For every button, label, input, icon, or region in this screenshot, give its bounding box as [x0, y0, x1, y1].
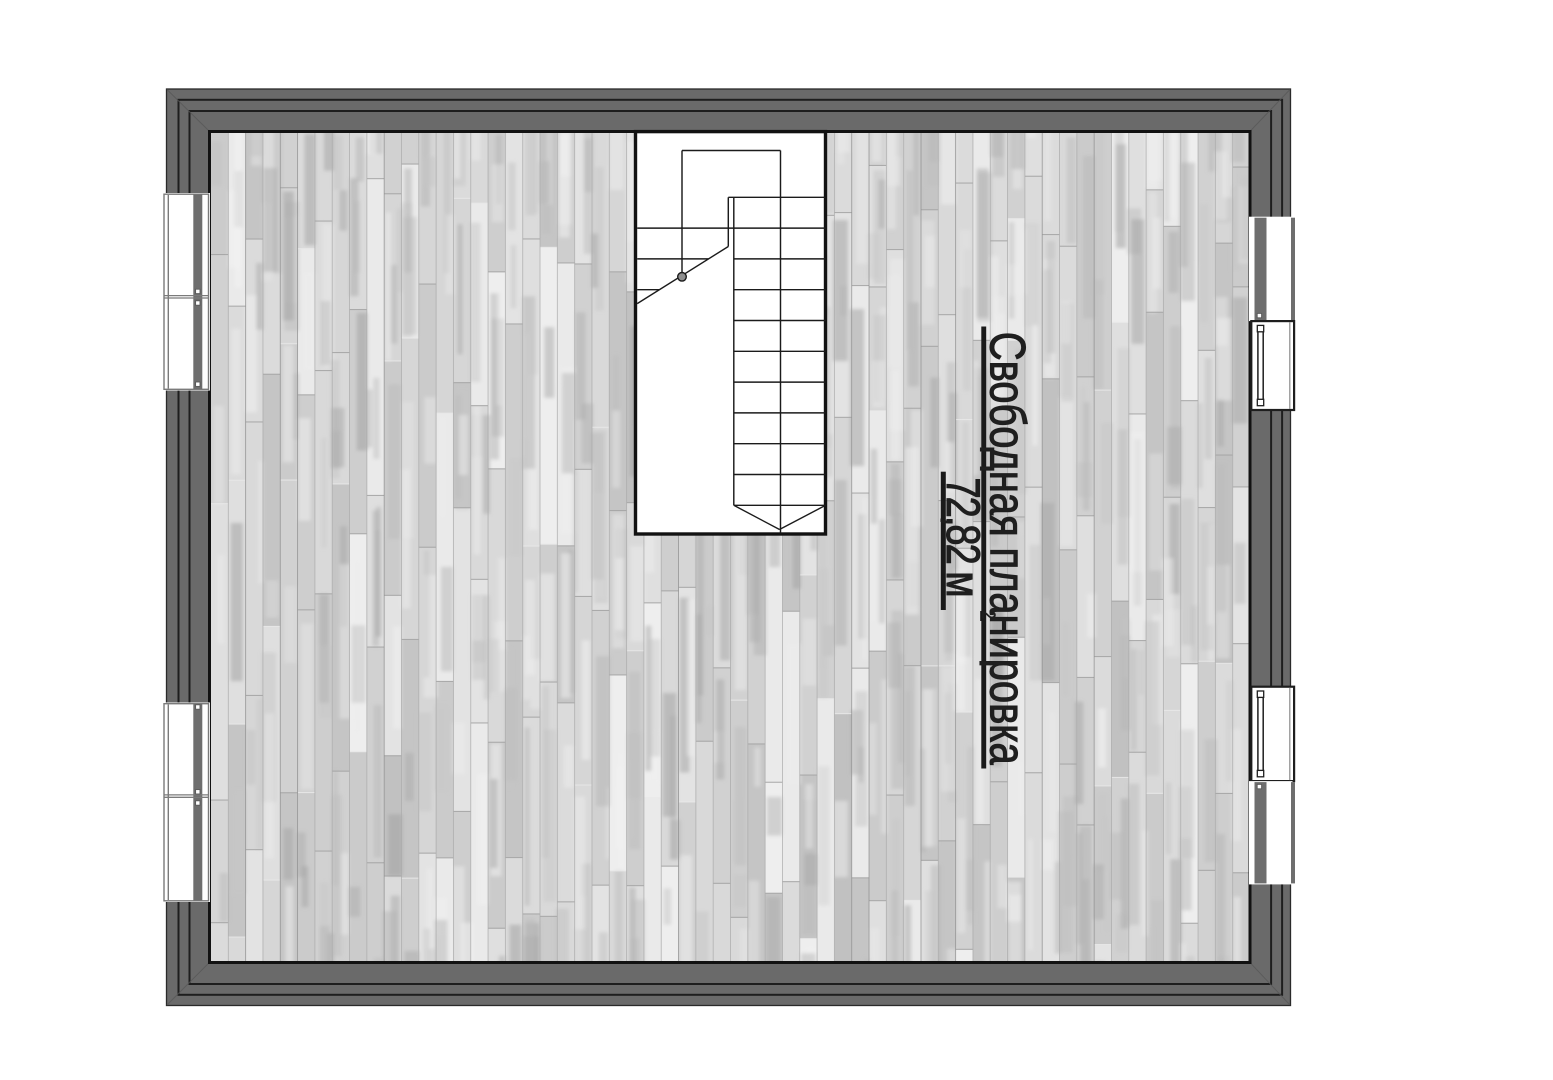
svg-text:2: 2: [978, 611, 999, 619]
svg-text:72,82 м: 72,82 м: [936, 478, 989, 598]
